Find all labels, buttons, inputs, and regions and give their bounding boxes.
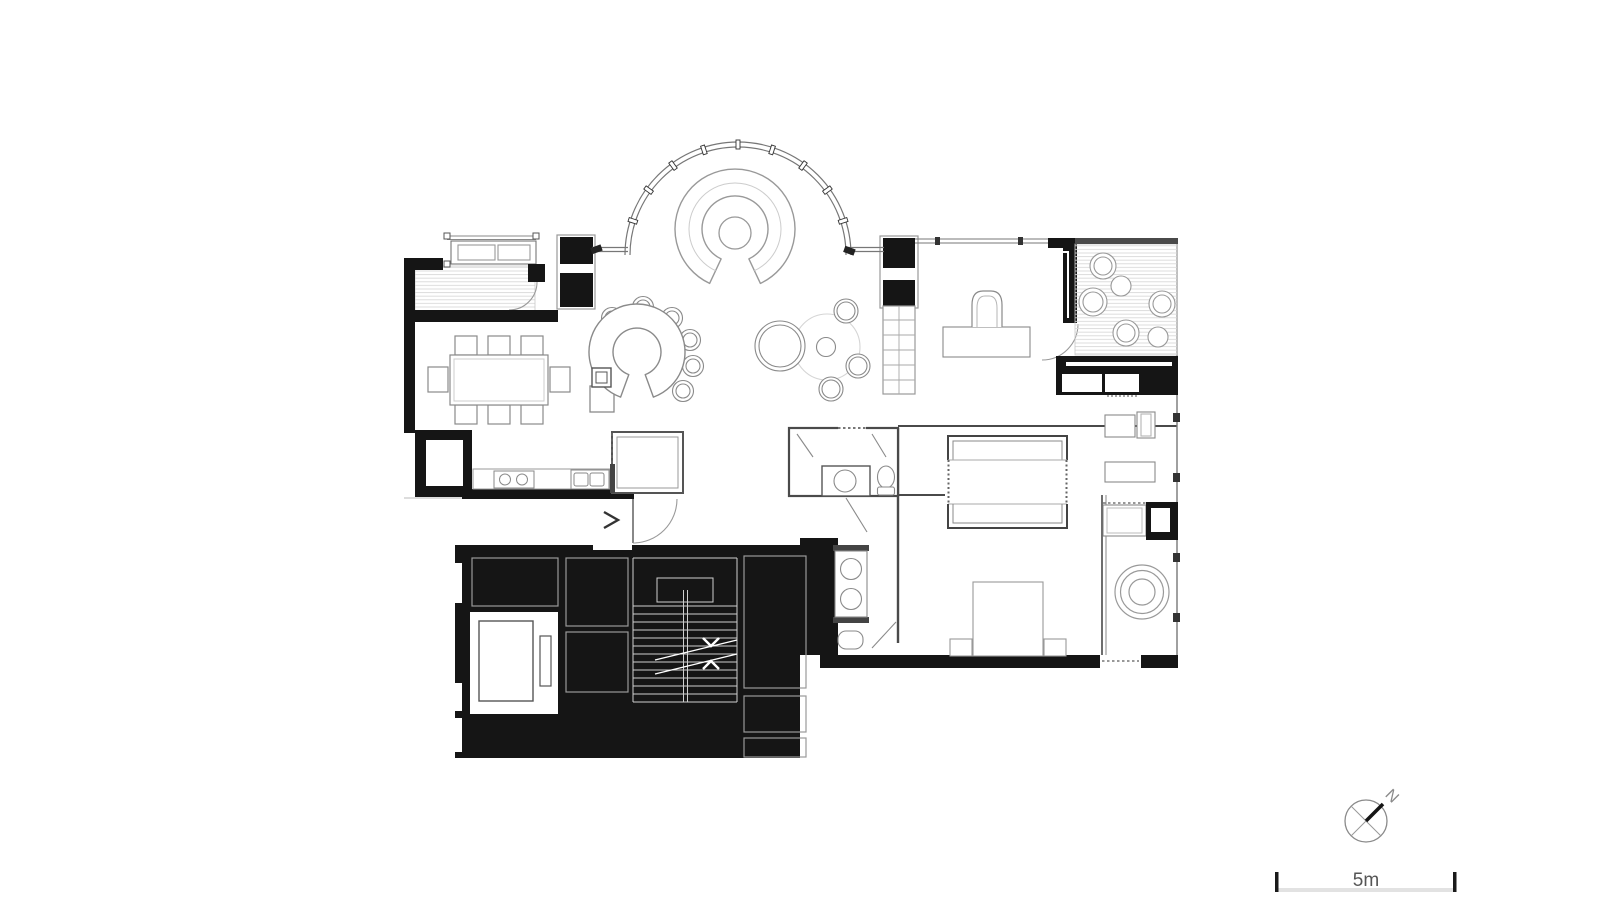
round-coffee-table — [719, 217, 751, 249]
terrace-north-rail — [1075, 238, 1178, 244]
kitchen — [473, 469, 610, 489]
west-wall — [404, 258, 415, 433]
elevator-cab — [479, 621, 533, 701]
bed-headboard — [948, 436, 1067, 460]
curved-sofa — [675, 169, 795, 283]
east-suite — [1100, 502, 1178, 668]
wardrobe — [1056, 356, 1178, 396]
rail-post — [444, 261, 450, 267]
dressing-area — [1105, 412, 1155, 482]
glass-railing — [447, 236, 536, 240]
curved-bar — [589, 297, 703, 413]
balcony-divider-wall — [404, 310, 558, 322]
north-needle — [1366, 804, 1383, 821]
pantry-interior — [426, 440, 463, 486]
hall-door-leaf — [846, 498, 867, 532]
side-table — [817, 338, 836, 357]
scale-bar: 5m — [1275, 870, 1457, 892]
wc-toilet — [838, 631, 863, 649]
door-post — [610, 464, 615, 493]
south-threshold — [1100, 655, 1141, 668]
terrace — [1075, 238, 1178, 355]
balcony-bench — [451, 241, 536, 264]
terrace-door-swing — [1042, 324, 1078, 360]
rail-post — [444, 233, 450, 239]
balcony-left — [415, 233, 539, 320]
hall-vanity — [833, 545, 869, 649]
dining-chair — [521, 405, 543, 424]
bed-footboard — [948, 504, 1067, 528]
north-label: N — [1382, 786, 1402, 806]
flue-column-right — [880, 236, 918, 308]
bathroom — [789, 428, 898, 532]
core-notch — [453, 563, 462, 603]
scale-tick — [1275, 872, 1279, 892]
floor-plan-sheet: N 5m — [0, 0, 1600, 900]
elevator — [470, 612, 558, 714]
bench — [1105, 462, 1155, 482]
office — [883, 291, 1078, 394]
core-notch — [453, 718, 462, 752]
elevator-door — [540, 636, 551, 686]
dining-chair — [550, 367, 570, 392]
scale-label: 5m — [1353, 870, 1379, 891]
master-bedroom — [872, 436, 1067, 656]
bed-lower — [950, 582, 1066, 656]
entry-door-swing — [633, 499, 677, 543]
dining-chair — [455, 336, 477, 355]
bar-sink — [592, 368, 611, 387]
dining-chair — [488, 336, 510, 355]
dining-chair — [488, 405, 510, 424]
bedroom-door-leaf — [872, 622, 896, 648]
bed — [973, 582, 1043, 656]
round-lounge-group — [755, 299, 870, 401]
west-wall-stub — [404, 258, 443, 270]
soaking-tub — [1115, 565, 1169, 619]
flue-column-left — [557, 235, 595, 309]
north-compass: N — [1345, 786, 1402, 842]
balcony-corner-wall — [528, 264, 545, 282]
toilet — [878, 466, 895, 495]
chaise-lounge — [1105, 415, 1135, 437]
stair-core — [453, 538, 838, 758]
dining-set — [428, 336, 570, 424]
dining-chair — [428, 367, 448, 392]
entry-closet — [612, 432, 683, 493]
laundry-counter — [1103, 505, 1146, 536]
scale-tick — [1453, 872, 1457, 892]
kitchen-south-wall — [462, 489, 634, 499]
dining-chair — [521, 336, 543, 355]
nightstand — [1044, 639, 1066, 656]
entry-arrow-icon — [604, 512, 618, 528]
core-notch — [453, 683, 462, 711]
nightstand — [950, 639, 972, 656]
office-desk — [943, 327, 1030, 357]
dining-chair — [455, 405, 477, 424]
rail-post — [533, 233, 539, 239]
